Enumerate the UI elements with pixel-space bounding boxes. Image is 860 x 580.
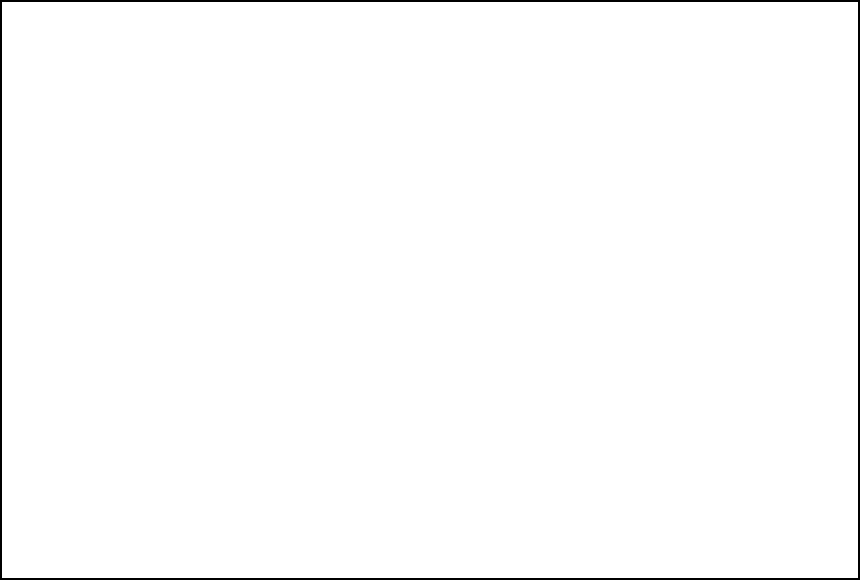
factory-render: [0, 0, 860, 580]
scene-canvas: [2, 2, 858, 578]
